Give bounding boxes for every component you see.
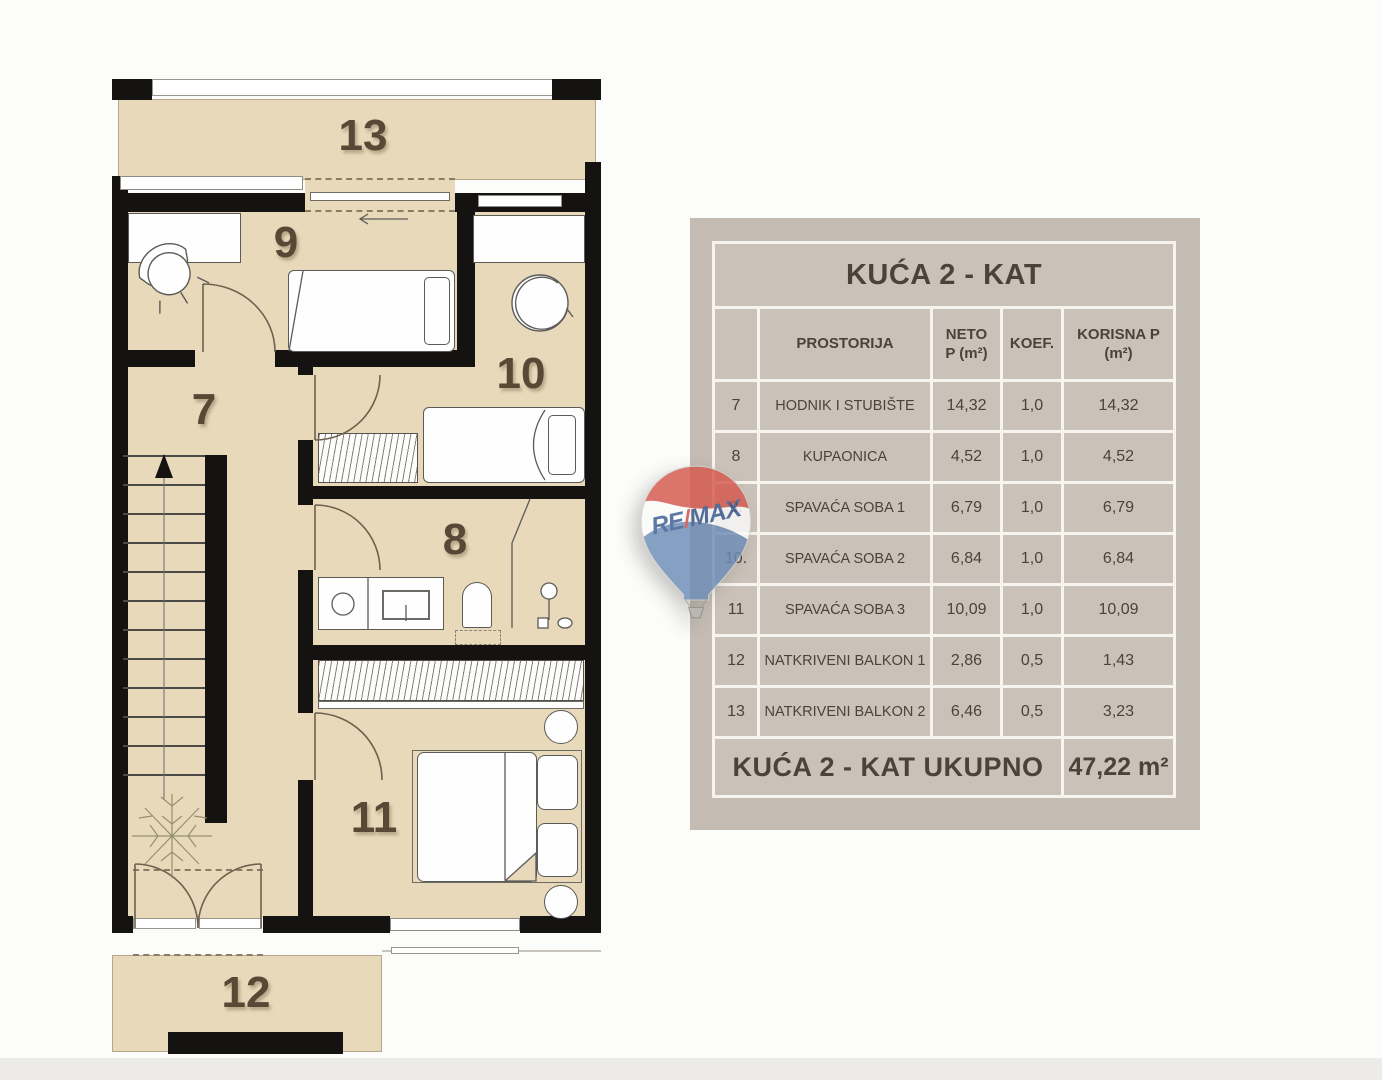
row-korisna: 6,79	[1064, 484, 1173, 532]
row-num: 13	[715, 688, 757, 736]
row-koef: 0,5	[1003, 688, 1061, 736]
balcony-12-wall	[168, 1032, 343, 1054]
wardrobe-room10	[318, 433, 418, 483]
toilet	[462, 582, 492, 628]
room10-label: 10	[497, 349, 546, 399]
threshold-right	[199, 918, 262, 929]
bed-room11-mattress	[417, 752, 537, 882]
row-num: 7	[715, 382, 757, 430]
room13-label: 13	[339, 111, 388, 161]
table-footer-label: KUĆA 2 - KAT UKUPNO	[715, 739, 1061, 795]
desk-room10	[473, 215, 585, 263]
wall-hall-b	[298, 440, 313, 505]
row-korisna: 6,84	[1064, 535, 1173, 583]
header-cell-prostorija: PROSTORIJA	[760, 309, 930, 379]
row-neto: 6,84	[933, 535, 1000, 583]
balloon-ropes	[685, 600, 706, 607]
remax-logo: RE/MAX	[632, 462, 760, 620]
row-neto: 6,46	[933, 688, 1000, 736]
row-korisna: 14,32	[1064, 382, 1173, 430]
row-name: HODNIK I STUBIŠTE	[760, 382, 930, 430]
row-koef: 1,0	[1003, 484, 1061, 532]
row-name: KUPAONICA	[760, 433, 930, 481]
header-neto-line1: NETO	[945, 325, 987, 345]
wardrobe-room11	[318, 660, 584, 701]
header-cell-koef: KOEF.	[1003, 309, 1061, 379]
wall-hall-d	[298, 780, 313, 918]
header-korisna-line1: KORISNA P	[1077, 325, 1160, 345]
wardrobe-room11-shelf	[318, 701, 584, 709]
wall-right	[585, 162, 601, 933]
row-neto: 10,09	[933, 586, 1000, 634]
row-name: SPAVAĆA SOBA 3	[760, 586, 930, 634]
row-koef: 1,0	[1003, 535, 1061, 583]
pillow-room11-a	[537, 755, 578, 810]
shower-tray	[455, 630, 501, 645]
window-room10	[478, 195, 562, 207]
door-dashed-line	[133, 869, 263, 871]
desk-room9	[128, 213, 241, 263]
row-neto: 6,79	[933, 484, 1000, 532]
header-neto-line2: P (m²)	[945, 344, 987, 364]
row-neto: 4,52	[933, 433, 1000, 481]
room11-label: 11	[351, 793, 398, 843]
pillow-room9	[424, 277, 450, 345]
row-name: NATKRIVENI BALKON 1	[760, 637, 930, 685]
room7-label: 7	[192, 385, 216, 435]
wall	[112, 79, 152, 100]
wall-hall-c	[298, 570, 313, 713]
table-footer-total: 47,22 m²	[1064, 739, 1173, 795]
row-koef: 1,0	[1003, 586, 1061, 634]
wall-bottom-b	[263, 916, 390, 933]
threshold-left	[133, 918, 196, 929]
row-koef: 1,0	[1003, 433, 1061, 481]
pillow-room11-b	[537, 823, 578, 877]
balloon-blue-bottom	[633, 522, 759, 620]
wall-top-left	[128, 193, 305, 212]
juliet-railing	[391, 947, 519, 954]
area-table: KUĆA 2 - KAT PROSTORIJA NETOP (m²) KOEF.…	[712, 241, 1176, 798]
sliding-door-panel	[310, 192, 450, 201]
row-num: 12	[715, 637, 757, 685]
stairs	[123, 455, 205, 803]
wall	[552, 79, 601, 100]
wall-hall-a	[298, 350, 313, 375]
row-koef: 0,5	[1003, 637, 1061, 685]
room12-label: 12	[222, 968, 271, 1018]
row-neto: 14,32	[933, 382, 1000, 430]
balcony-12-dashed-line	[133, 954, 263, 956]
wall-room9-bottom-a	[112, 350, 195, 367]
window-room9	[120, 176, 303, 190]
header-cell-neto: NETOP (m²)	[933, 309, 1000, 379]
row-name: NATKRIVENI BALKON 2	[760, 688, 930, 736]
room9-label: 9	[274, 218, 298, 268]
row-neto: 2,86	[933, 637, 1000, 685]
nightstand-top	[544, 710, 578, 744]
wall-bottom-a	[112, 916, 133, 933]
wall-10-8	[313, 486, 585, 499]
wall-8-11	[298, 645, 585, 660]
balcony-13-railing	[152, 79, 553, 96]
row-name: SPAVAĆA SOBA 2	[760, 535, 930, 583]
header-cell-korisna: KORISNA P(m²)	[1064, 309, 1173, 379]
row-korisna: 3,23	[1064, 688, 1173, 736]
row-korisna: 4,52	[1064, 433, 1173, 481]
room8-label: 8	[443, 515, 467, 565]
balloon-basket	[689, 607, 704, 618]
header-korisna-line2: (m²)	[1077, 344, 1160, 364]
sink-basin	[382, 590, 430, 620]
header-cell-empty	[715, 309, 757, 379]
floor-plan: 13 9 10 7 8 11 12	[0, 0, 700, 1080]
row-korisna: 1,43	[1064, 637, 1173, 685]
nightstand-bottom	[544, 885, 578, 919]
window-room11	[390, 918, 520, 931]
row-name: SPAVAĆA SOBA 1	[760, 484, 930, 532]
table-title: KUĆA 2 - KAT	[715, 244, 1173, 306]
stair-stringer	[205, 455, 227, 823]
pillow-room10	[548, 415, 576, 475]
row-koef: 1,0	[1003, 382, 1061, 430]
row-korisna: 10,09	[1064, 586, 1173, 634]
